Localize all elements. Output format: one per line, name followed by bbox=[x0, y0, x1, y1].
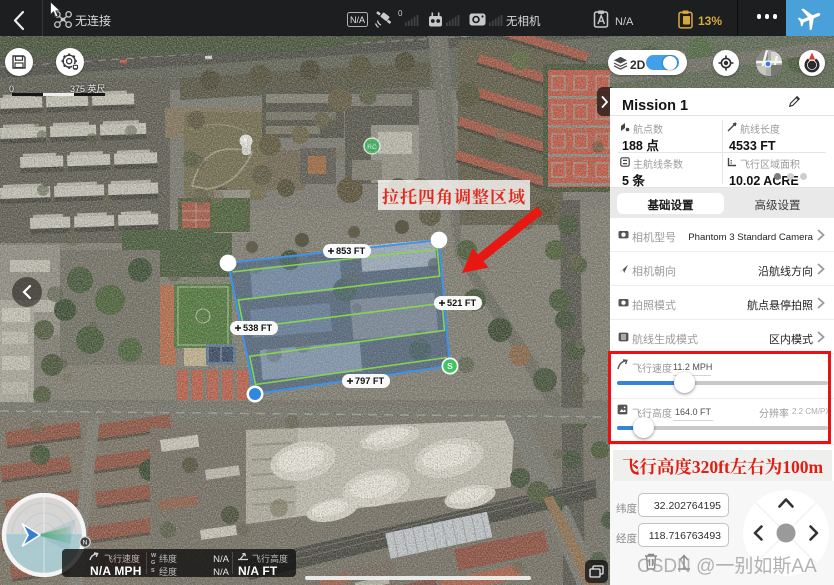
svg-text:521 FT: 521 FT bbox=[447, 298, 476, 308]
svg-text:853 FT: 853 FT bbox=[336, 246, 365, 256]
svg-text:538 FT: 538 FT bbox=[243, 323, 272, 333]
svg-text:797 FT: 797 FT bbox=[355, 376, 384, 386]
svg-text:N: N bbox=[83, 540, 88, 547]
svg-text:S: S bbox=[447, 361, 453, 371]
